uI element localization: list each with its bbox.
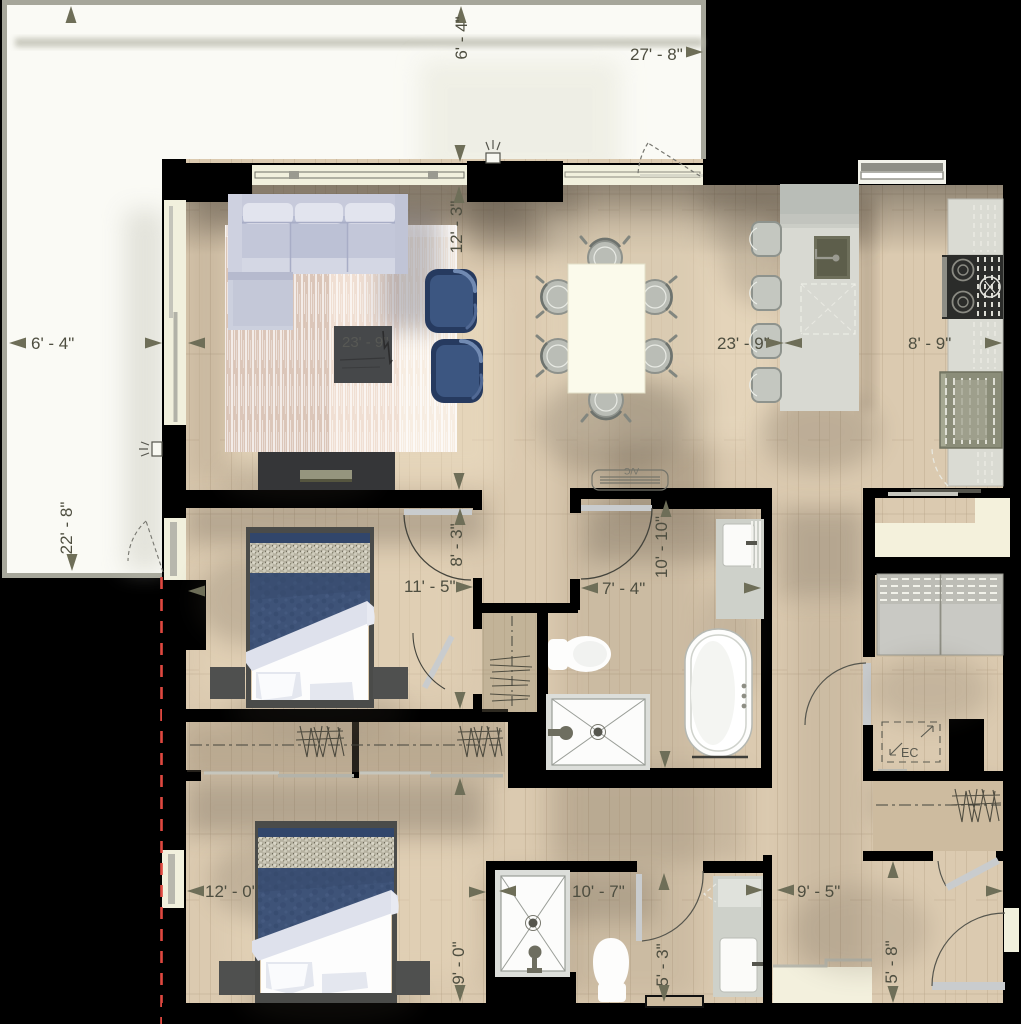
svg-text:8' - 9": 8' - 9" (908, 334, 951, 353)
svg-text:8' - 3": 8' - 3" (447, 523, 466, 566)
svg-text:EC: EC (901, 746, 918, 760)
svg-text:5' - 3": 5' - 3" (653, 943, 672, 986)
svg-text:A/C: A/C (623, 466, 639, 476)
svg-text:7' - 4": 7' - 4" (602, 579, 645, 598)
svg-text:9' - 0": 9' - 0" (449, 941, 468, 984)
svg-text:12' - 3": 12' - 3" (447, 201, 466, 254)
svg-text:10' - 10": 10' - 10" (652, 516, 671, 578)
svg-text:6' - 4": 6' - 4" (31, 334, 74, 353)
svg-text:6' - 4": 6' - 4" (452, 16, 471, 59)
svg-text:22' - 8": 22' - 8" (57, 502, 76, 555)
svg-text:10' - 7": 10' - 7" (572, 882, 625, 901)
svg-text:5' - 8": 5' - 8" (882, 940, 901, 983)
svg-text:12' - 0": 12' - 0" (205, 882, 258, 901)
svg-text:23' - 9": 23' - 9" (342, 334, 389, 351)
svg-text:9' - 5": 9' - 5" (797, 882, 840, 901)
svg-text:27' - 8": 27' - 8" (630, 45, 683, 64)
svg-text:11' - 5": 11' - 5" (404, 577, 456, 596)
svg-text:23' - 9": 23' - 9" (717, 334, 770, 353)
